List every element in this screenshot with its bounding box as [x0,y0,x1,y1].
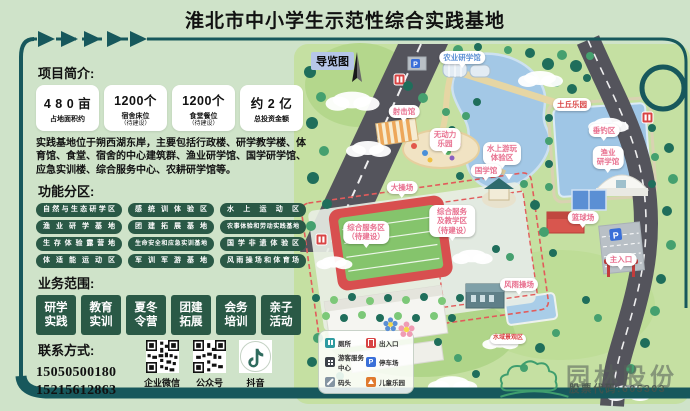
toilet-icon [325,338,335,348]
qr-label: 企业微信 [144,376,180,389]
stat-label: 宿舍床位 [122,111,150,121]
intro-heading: 项目简介: [38,63,306,82]
label-fishery-hall: 渔业 研学馆 [593,146,624,169]
label-water-play-area: 水上游玩 体验区 [483,142,521,165]
qr-official-account: 公众号 [193,340,226,389]
visitor-center-icon [325,357,335,367]
legend-label: 儿童乐园 [379,377,405,387]
zone-badges: 自然与生态研学区 感统训体验区 水上运动区 渔业研学基地 团建拓展基地 农事体验… [36,203,306,268]
legend-label: 停车场 [379,357,399,367]
legend-parking: P 停车场 [366,352,407,372]
stat-card: 约 2 亿 总投资金额 [240,85,303,131]
label-guoxue-hall: 国学馆 [471,164,502,177]
stat-card: 4 8 0 亩 占地面积约 [36,85,99,131]
business-badge: 研学实践 [36,295,76,335]
label-mound-park: 土丘乐园 [553,98,591,111]
stat-value: 约 2 亿 [251,93,292,112]
stat-value: 1200个 [182,90,225,109]
business-badge: 亲子活动 [261,295,301,335]
business-badge: 团建拓展 [171,295,211,335]
business-badge: 夏冬令营 [126,295,166,335]
zone-badge: 军训军游基地 [128,254,214,268]
label-agriculture-hall: 农业研学馆 [439,51,485,64]
douyin-badge: 抖音 [239,340,272,389]
stat-label: 总投资金额 [254,114,289,124]
label-teaching-area: 综合服务 及教学区 （待建设） [429,205,475,237]
stat-sub: （待建设） [188,121,218,127]
legend-kids-park: 儿童乐园 [366,377,407,387]
zone-badge: 生命安全和应急实训基地 [128,237,214,251]
stat-card: 1200个 食堂餐位 （待建设） [172,85,235,131]
project-description: 实践基地位于朔西湖东岸，主要包括行政楼、研学教学楼、体育馆、食堂、宿舍的中心建筑… [36,137,306,177]
stat-cards: 4 8 0 亩 占地面积约 1200个 宿舍床位 （待建设） 1200个 食堂餐… [36,85,306,131]
parking-small: P [408,57,426,70]
phone-number: 15215612863 [36,382,144,400]
badge-line: 活动 [270,315,293,329]
zone-badge: 渔业研学基地 [36,220,122,234]
qr-code-icon [193,340,226,373]
zones-heading: 功能分区: [38,181,306,200]
badge-line: 令营 [135,315,158,329]
info-panel: 项目简介: 4 8 0 亩 占地面积约 1200个 宿舍床位 （待建设） 120… [36,63,306,401]
phone-number: 15050500180 [36,364,144,382]
legend-label: 码头 [338,377,351,387]
label-basketball-court: 篮球场 [568,211,599,224]
label-fishing-area: 垂钓区 [589,124,620,137]
badge-line: 亲子 [270,301,293,315]
badge-line: 实践 [45,315,68,329]
phone-numbers: 15050500180 15215612863 [36,364,144,400]
garden-logo-icon [498,350,570,407]
dock-icon [325,377,335,387]
badge-line: 实训 [90,315,113,329]
qr-wechat-work: 企业微信 [144,340,180,389]
business-badges: 研学实践 教育实训 夏冬令营 团建拓展 会务培训 亲子活动 [36,295,306,335]
poster: P P [0,0,690,411]
frame-left [21,39,34,380]
zone-badge: 水上运动区 [220,203,306,217]
zone-badge: 感统训体验区 [128,203,214,217]
badge-line: 培训 [225,315,248,329]
badge-line: 拓展 [180,315,203,329]
legend-dock: 码头 [325,377,364,387]
toilet-icon [394,74,405,85]
label-indoor-stadium: 风雨操场 [500,278,538,291]
zone-badge: 体适能运动区 [36,254,122,268]
parking-icon: P [612,230,619,241]
stat-card: 1200个 宿舍床位 （待建设） [104,85,167,131]
zone-badge: 农事体验和劳动实践基地 [220,220,306,234]
douyin-icon [239,340,272,373]
zone-badge: 风雨操场和体育场 [220,254,306,268]
qr-codes: 企业微信 公众号 抖音 [144,340,272,389]
legend-label: 游客服务中心 [338,352,364,372]
label-sports-field: 大操场 [387,181,418,194]
toilet-icon [316,234,327,245]
kids-park-icon [366,377,376,387]
legend-label: 出入口 [379,338,399,348]
map-title-tag: 导览图 [311,52,354,70]
badge-line: 研学 [45,301,68,315]
business-badge: 会务培训 [216,295,256,335]
zone-badge: 自然与生态研学区 [36,203,122,217]
label-main-entrance: 主入口 [606,253,637,266]
qr-code-icon [146,340,179,373]
toilet-icon [642,112,653,123]
zone-badge: 国学非遗体验区 [220,237,306,251]
business-heading: 业务范围: [38,273,306,292]
page-title: 淮北市中小学生示范性综合实践基地 [0,6,690,33]
stat-value: 4 8 0 亩 [44,93,91,112]
business-badge: 教育实训 [81,295,121,335]
qr-label: 抖音 [247,376,265,389]
parking-icon: P [366,357,376,367]
arrow-chain [38,31,147,47]
entrance-icon [366,338,376,348]
qr-label: 公众号 [196,376,223,389]
stat-label: 占地面积约 [50,114,85,124]
label-waterscape: 水域景观区 [490,334,526,344]
badge-line: 夏冬 [135,301,158,315]
legend-visitor-center: 游客服务中心 [325,352,364,372]
zone-badge: 团建拓展基地 [128,220,214,234]
badge-line: 会务 [225,301,248,315]
legend-label: 厕所 [338,338,351,348]
stat-sub: （待建设） [120,121,150,127]
flower-icon [383,317,398,337]
label-playground: 无动力 乐园 [430,128,461,151]
badge-line: 团建 [180,301,203,315]
contact-section: 联系方式: 15050500180 15215612863 企业微信 公众号 抖 [36,340,306,400]
label-service-area: 综合服务区 （待建设） [343,221,389,244]
parking-icon: P [413,62,418,69]
label-shooting-hall: 射击馆 [389,105,420,118]
stat-value: 1200个 [114,90,157,109]
stock-code: 股票代码:605303 [569,381,666,396]
legend-toilet: 厕所 [325,338,364,348]
flower-icon [398,321,415,343]
badge-line: 教育 [90,301,113,315]
zone-badge: 生存体验露营地 [36,237,122,251]
contact-heading: 联系方式: [38,340,144,359]
indoor-stadium [466,284,504,308]
stat-label: 食堂餐位 [190,111,218,121]
